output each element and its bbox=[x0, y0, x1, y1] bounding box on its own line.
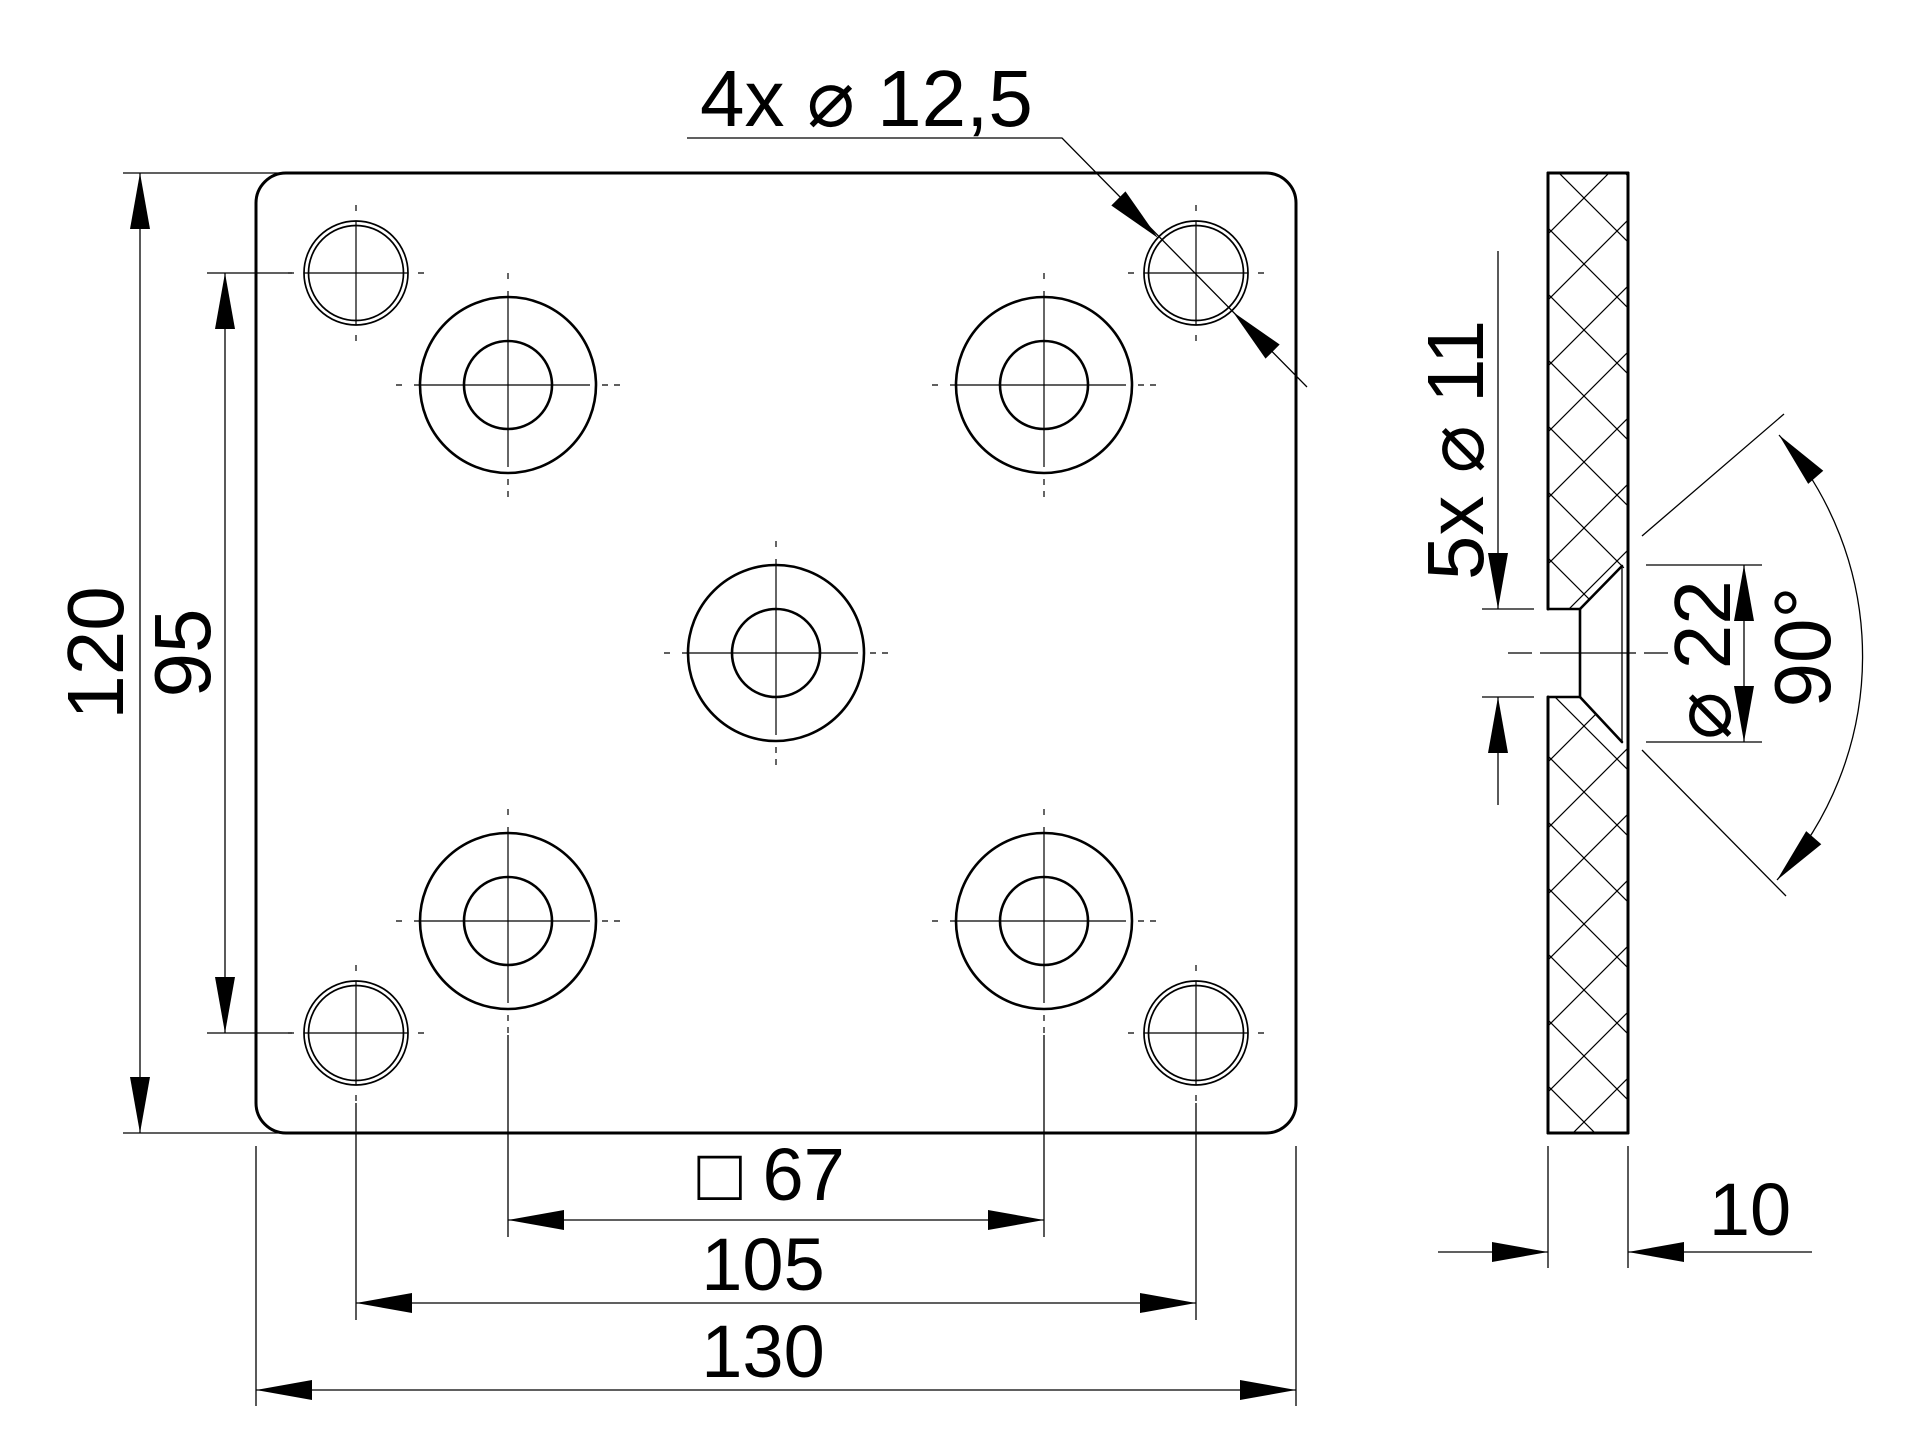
angle-leg bbox=[1642, 414, 1784, 536]
dim-holes-label: 5x ⌀ 11 bbox=[1411, 320, 1500, 580]
dim-angle-label: 90° bbox=[1758, 587, 1847, 708]
dim-csk-22: ⌀ 22 bbox=[1646, 565, 1762, 742]
corner-hole-bottom-right bbox=[1128, 965, 1264, 1101]
dim-arrow-icon bbox=[1769, 831, 1821, 886]
hole-callout-label: 4x ⌀ 12,5 bbox=[700, 54, 1033, 143]
dim-thickness-label: 10 bbox=[1709, 1168, 1791, 1251]
dim-square-label: □ 67 bbox=[697, 1133, 845, 1216]
dim-arrow-icon bbox=[1492, 1242, 1548, 1262]
hatch-lower bbox=[1549, 698, 1627, 1132]
csk-hole-bottom-left bbox=[396, 809, 620, 1033]
csk-hole-top-right bbox=[932, 273, 1156, 497]
dim-square-67: □ 67 bbox=[508, 1035, 1044, 1237]
dim-arrow-icon bbox=[1488, 697, 1508, 753]
dim-arrow-icon bbox=[215, 273, 235, 329]
dim-thickness-10: 10 bbox=[1438, 1146, 1812, 1268]
dim-arrow-icon bbox=[130, 1077, 150, 1133]
dim-arrow-icon bbox=[508, 1210, 564, 1230]
dim-arrow-icon bbox=[356, 1293, 412, 1313]
hatch-upper bbox=[1549, 174, 1627, 608]
csk-hole-bottom-right bbox=[932, 809, 1156, 1033]
dim-arrow-icon bbox=[130, 173, 150, 229]
dim-rows-95: 95 bbox=[138, 273, 292, 1033]
hole-callout: 4x ⌀ 12,5 bbox=[687, 54, 1307, 387]
dim-height-label: 120 bbox=[51, 586, 140, 719]
callout-leader-line bbox=[687, 138, 1307, 387]
dim-arrow-icon bbox=[256, 1380, 312, 1400]
side-view: 5x ⌀ 11 ⌀ 22 90° 10 bbox=[1411, 173, 1863, 1268]
dim-arrow-icon bbox=[1628, 1242, 1684, 1262]
front-view: 4x ⌀ 12,5 120 95 bbox=[51, 54, 1307, 1406]
dim-arrow-icon bbox=[215, 977, 235, 1033]
dim-arrow-icon bbox=[1140, 1293, 1196, 1313]
dim-csk-label: ⌀ 22 bbox=[1658, 580, 1747, 739]
csk-hole-top-left bbox=[396, 273, 620, 497]
callout-arrow-icon bbox=[1226, 305, 1280, 359]
dim-arrow-icon bbox=[1771, 428, 1823, 483]
dim-rows-label: 95 bbox=[138, 609, 227, 698]
dim-holes-11: 5x ⌀ 11 bbox=[1411, 251, 1534, 805]
drawing-canvas: 4x ⌀ 12,5 120 95 bbox=[0, 0, 1919, 1440]
dim-width-label: 130 bbox=[701, 1310, 824, 1393]
corner-hole-bottom-left bbox=[288, 965, 424, 1101]
dim-arrow-icon bbox=[1240, 1380, 1296, 1400]
csk-hole-center bbox=[664, 541, 888, 765]
dim-cols-label: 105 bbox=[701, 1223, 824, 1306]
corner-hole-top-left bbox=[288, 205, 424, 341]
angle-leg bbox=[1642, 750, 1786, 896]
dim-arrow-icon bbox=[988, 1210, 1044, 1230]
callout-arrow-icon bbox=[1111, 191, 1165, 245]
